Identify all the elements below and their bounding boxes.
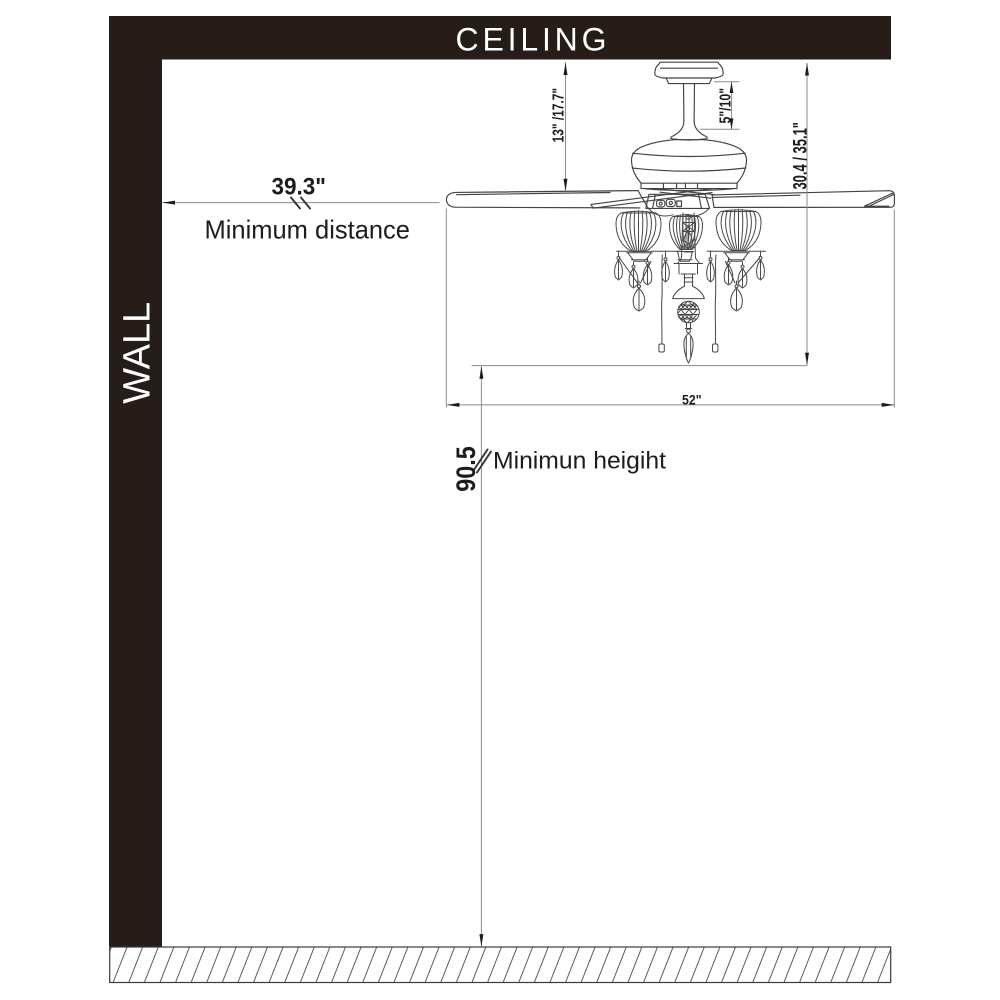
svg-text:Minimum distance: Minimum distance bbox=[205, 215, 411, 245]
svg-text:30.4 / 35.1": 30.4 / 35.1" bbox=[790, 122, 811, 190]
svg-text:CEILING: CEILING bbox=[456, 22, 607, 58]
svg-text:Minimun heigiht: Minimun heigiht bbox=[493, 447, 666, 474]
svg-text:90.5: 90.5 bbox=[451, 446, 481, 492]
svg-text:13" /17.7": 13" /17.7" bbox=[551, 88, 568, 143]
svg-text:5"/10": 5"/10" bbox=[717, 88, 734, 124]
svg-text:52": 52" bbox=[682, 392, 702, 407]
svg-text:39.3": 39.3" bbox=[271, 174, 326, 201]
svg-text:WALL: WALL bbox=[117, 302, 159, 404]
